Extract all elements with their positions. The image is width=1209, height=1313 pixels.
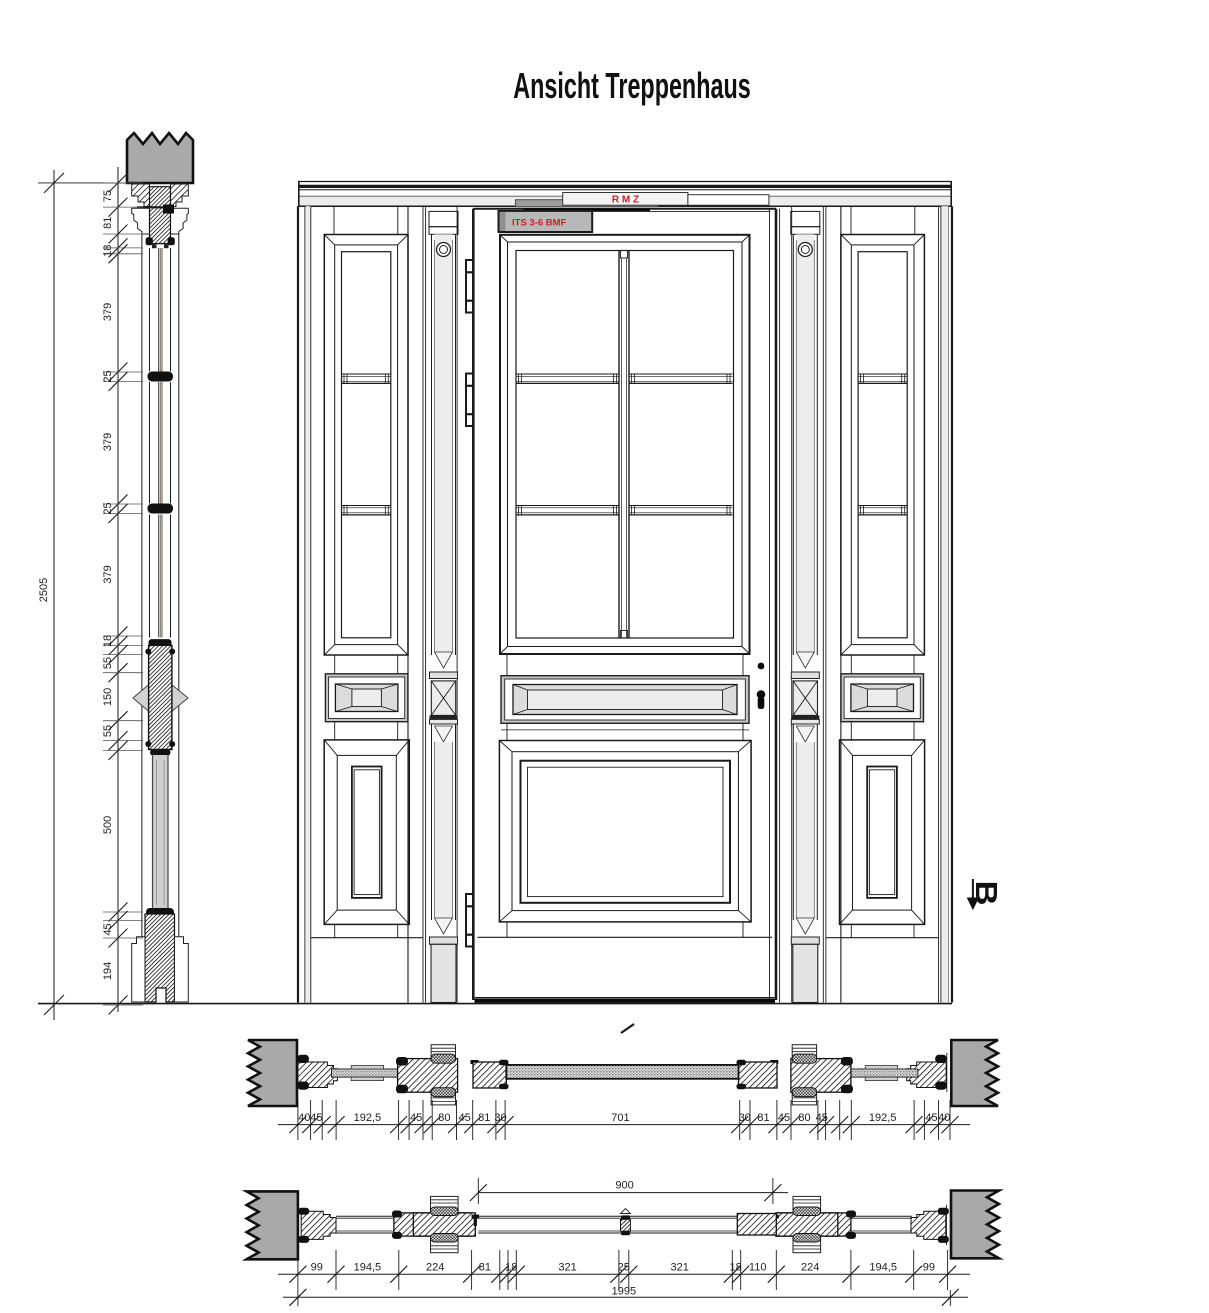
svg-text:30: 30 xyxy=(739,1112,751,1124)
svg-text:R M Z: R M Z xyxy=(612,195,639,206)
svg-text:500: 500 xyxy=(102,816,114,834)
svg-text:99: 99 xyxy=(311,1262,323,1274)
svg-text:81: 81 xyxy=(478,1112,490,1124)
svg-text:25: 25 xyxy=(618,1262,630,1274)
svg-text:321: 321 xyxy=(558,1262,576,1274)
svg-text:25: 25 xyxy=(102,502,114,514)
svg-text:1995: 1995 xyxy=(612,1286,636,1298)
svg-text:110: 110 xyxy=(749,1262,767,1274)
svg-text:99: 99 xyxy=(923,1262,935,1274)
svg-text:150: 150 xyxy=(102,688,114,706)
svg-text:40: 40 xyxy=(298,1112,310,1124)
svg-text:224: 224 xyxy=(426,1262,444,1274)
svg-text:ITS 3-6 BMF: ITS 3-6 BMF xyxy=(512,218,567,229)
svg-text:81: 81 xyxy=(479,1262,491,1274)
svg-text:379: 379 xyxy=(102,433,114,451)
svg-text:224: 224 xyxy=(801,1262,819,1274)
svg-text:45: 45 xyxy=(816,1112,828,1124)
svg-text:379: 379 xyxy=(102,565,114,583)
svg-text:192,5: 192,5 xyxy=(869,1112,897,1124)
svg-text:2505: 2505 xyxy=(38,578,50,602)
svg-text:18: 18 xyxy=(102,635,114,647)
svg-text:55: 55 xyxy=(102,657,114,669)
svg-text:701: 701 xyxy=(611,1112,629,1124)
svg-text:379: 379 xyxy=(102,303,114,321)
svg-text:25: 25 xyxy=(102,370,114,382)
svg-text:321: 321 xyxy=(671,1262,689,1274)
svg-text:81: 81 xyxy=(757,1112,769,1124)
svg-text:45: 45 xyxy=(410,1112,422,1124)
svg-text:45: 45 xyxy=(458,1112,470,1124)
svg-text:18: 18 xyxy=(505,1262,517,1274)
svg-text:45: 45 xyxy=(310,1112,322,1124)
svg-text:194: 194 xyxy=(102,962,114,980)
svg-text:900: 900 xyxy=(615,1180,633,1192)
svg-text:55: 55 xyxy=(102,725,114,737)
svg-text:194,5: 194,5 xyxy=(354,1262,382,1274)
svg-text:75: 75 xyxy=(102,190,114,202)
svg-text:80: 80 xyxy=(798,1112,810,1124)
svg-text:Ansicht Treppenhaus: Ansicht Treppenhaus xyxy=(513,66,750,106)
svg-text:18: 18 xyxy=(102,245,114,257)
svg-text:40: 40 xyxy=(938,1112,950,1124)
svg-text:30: 30 xyxy=(494,1112,506,1124)
svg-text:80: 80 xyxy=(438,1112,450,1124)
svg-text:81: 81 xyxy=(102,217,114,229)
svg-text:194,5: 194,5 xyxy=(869,1262,897,1274)
svg-text:192,5: 192,5 xyxy=(354,1112,382,1124)
svg-text:45: 45 xyxy=(102,923,114,935)
svg-text:45: 45 xyxy=(925,1112,937,1124)
svg-text:18: 18 xyxy=(729,1262,741,1274)
svg-text:45: 45 xyxy=(778,1112,790,1124)
